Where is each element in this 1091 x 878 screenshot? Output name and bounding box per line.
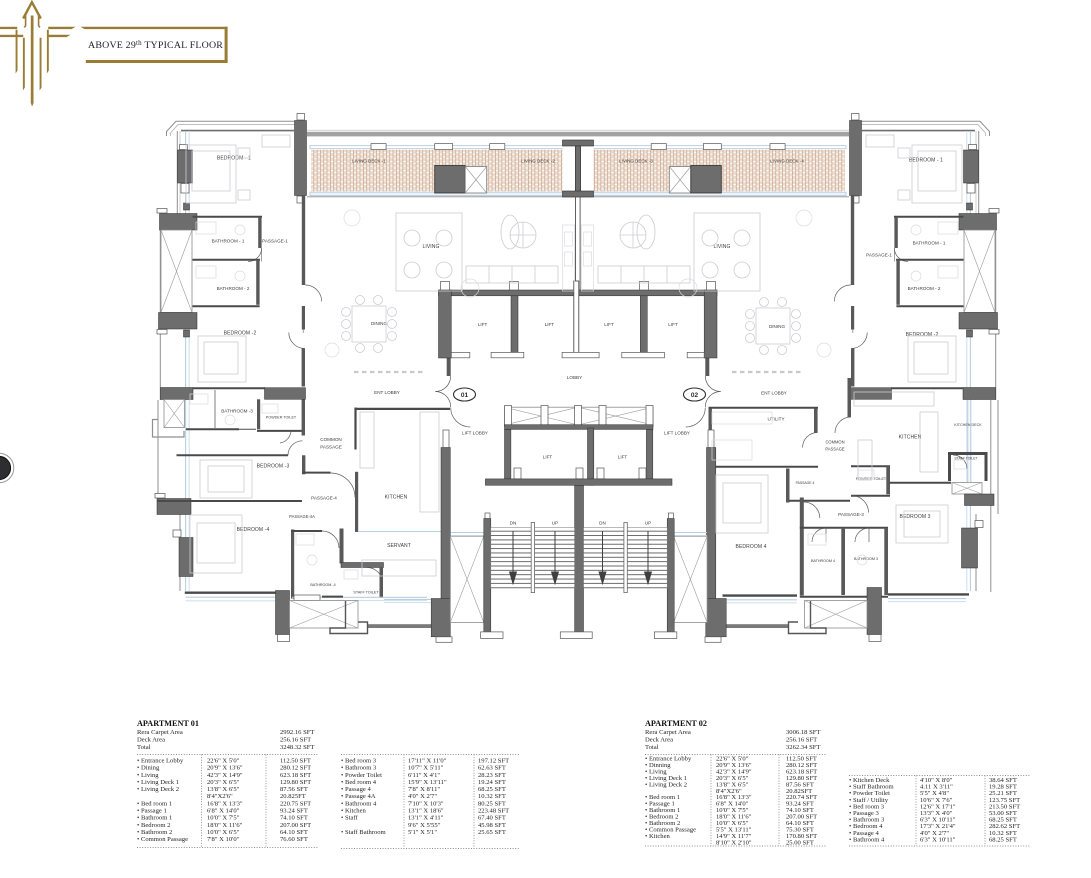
svg-text:BATHROOM - 2: BATHROOM - 2 [217,286,250,291]
svg-text:LIFT: LIFT [543,455,553,460]
svg-text:• Common Passage7'8" X 10'0"76: • Common Passage7'8" X 10'0"76.60 SFT [137,836,308,843]
svg-text:PASSAGE 4: PASSAGE 4 [796,481,815,485]
svg-text:BATHROOM 4: BATHROOM 4 [811,559,835,563]
svg-text:PASSAGE: PASSAGE [320,445,342,450]
svg-text:APARTMENT 01: APARTMENT 01 [137,719,199,728]
svg-text:STAFF TOILET: STAFF TOILET [353,591,379,595]
svg-text:BEDROOM - 1: BEDROOM - 1 [217,156,251,162]
svg-text:LIVING: LIVING [714,244,731,250]
svg-text:BEDROOM - 1: BEDROOM - 1 [909,158,943,164]
svg-text:SERVANT: SERVANT [387,543,411,549]
svg-text:LIFT LOBBY: LIFT LOBBY [664,431,690,436]
svg-text:PASSAGE-1: PASSAGE-1 [262,239,288,244]
svg-text:LIVING: LIVING [423,244,440,250]
svg-text:• Passage 47'8" X 8'11"68.25 S: • Passage 47'8" X 8'11"68.25 SFT [341,786,506,793]
svg-text:• Bathroom 46'3" X 10'11"68.25: • Bathroom 46'3" X 10'11"68.25 SFT [849,836,1017,843]
svg-text:COMMON: COMMON [825,440,844,445]
svg-text:LIFT: LIFT [604,322,614,327]
svg-text:ENT LOBBY: ENT LOBBY [761,391,787,396]
svg-text:COMMON: COMMON [320,437,341,442]
svg-text:BEDROOM -2: BEDROOM -2 [906,332,939,338]
svg-text:• Bathroom 310'7" X 5'11"62.6: • Bathroom 310'7" X 5'11"62.63 SFT [341,765,506,772]
svg-text:BATHROOM -4: BATHROOM -4 [310,583,335,587]
svg-text:• Entrance Lobby22'6" X 5'0"11: • Entrance Lobby22'6" X 5'0"112.50 SFT [137,758,311,765]
svg-text:• Living Deck 213'8" X 6'5"87.: • Living Deck 213'8" X 6'5"87.56 SFT [137,786,308,793]
svg-text:• Bed room 116'8" X 13'3"220.7: • Bed room 116'8" X 13'3"220.75 SFT [137,800,311,807]
svg-text:DN: DN [510,521,517,526]
svg-text:• Living Deck 120'3" X 6'5"129: • Living Deck 120'3" X 6'5"129.80 SFT [137,779,311,786]
svg-text:• Staff Bathroom5'1" X 5'1"25.: • Staff Bathroom5'1" X 5'1"25.65 SFT [341,829,506,836]
svg-text:PASSAGE-3: PASSAGE-3 [838,512,864,517]
svg-text:PASSAGE: PASSAGE [825,447,845,452]
svg-text:PASSAGE-4: PASSAGE-4 [311,496,337,501]
svg-text:KITCHEN: KITCHEN [385,495,408,501]
svg-text:BATHROOM - 1: BATHROOM - 1 [212,239,245,244]
svg-text:LOBBY: LOBBY [567,375,582,380]
svg-text:• Passage 4A4'0" X 2'7"10.32: • Passage 4A4'0" X 2'7"10.32 SFT [341,793,506,800]
svg-text:PASSAGE-1: PASSAGE-1 [866,253,892,258]
svg-text:• Bathroom 110'0" X 7'5"74.10: • Bathroom 110'0" X 7'5"74.10 SFT [137,815,308,822]
svg-text:• Bathroom 47'10" X 10'3"80.25: • Bathroom 47'10" X 10'3"80.25 SFT [341,800,506,807]
svg-text:• Bed room 317'11" X 11'0"197.: • Bed room 317'11" X 11'0"197.12 SFT [341,758,509,765]
svg-text:BEDROOM 4: BEDROOM 4 [736,544,767,550]
svg-text:LIVING DECK -4: LIVING DECK -4 [770,159,804,164]
svg-text:KITCHEN: KITCHEN [899,435,922,441]
svg-text:LIFT: LIFT [545,322,555,327]
svg-text:UP: UP [645,521,651,526]
svg-text:DN: DN [599,521,606,526]
svg-text:02: 02 [691,392,699,399]
svg-text:UP: UP [552,521,558,526]
svg-text:• Passage 16'8" X 14'0"93.24 S: • Passage 16'8" X 14'0"93.24 SFT [137,808,308,815]
svg-text:LIFT: LIFT [668,322,678,327]
svg-text:APARTMENT 02: APARTMENT 02 [645,719,707,728]
svg-text:LIVING DECK -2: LIVING DECK -2 [521,159,555,164]
svg-text:LIVING DECK -1: LIVING DECK -1 [352,159,386,164]
svg-text:BEDROOM -3: BEDROOM -3 [257,464,290,470]
svg-text:BATHROOM - 2: BATHROOM - 2 [908,286,941,291]
svg-text:LIFT LOBBY: LIFT LOBBY [462,431,488,436]
svg-text:ABOVE 29th TYPICAL FLOOR: ABOVE 29th TYPICAL FLOOR [88,39,223,51]
svg-text:DINING: DINING [769,324,786,329]
svg-text:BEDROOM -4: BEDROOM -4 [237,527,270,533]
svg-text:UTILITY: UTILITY [767,417,784,422]
svg-text:• Bedroom 218'0" X 11'6"207.00: • Bedroom 218'0" X 11'6"207.00 SFT [137,822,311,829]
svg-text:• Bed room 415'9" X 13'11"19.2: • Bed room 415'9" X 13'11"19.24 SFT [341,779,506,786]
svg-text:BATHROOM -3: BATHROOM -3 [221,409,253,414]
svg-text:KITCHEN DECK: KITCHEN DECK [954,423,982,427]
svg-text:• Powder Toilet6'11" X 4'1"28.: • Powder Toilet6'11" X 4'1"28.23 SFT [341,772,506,779]
svg-text:LIFT: LIFT [478,322,488,327]
svg-text:PASSAGE-4A: PASSAGE-4A [289,514,315,519]
svg-text:• Bathroom 210'0" X 6'5"64.10: • Bathroom 210'0" X 6'5"64.10 SFT [137,829,308,836]
svg-text:01: 01 [461,392,469,399]
svg-text:POWDER TOILET: POWDER TOILET [266,416,297,420]
svg-text:LIFT: LIFT [618,455,628,460]
svg-text:DINING: DINING [371,321,388,326]
svg-text:BATHROOM - 1: BATHROOM - 1 [913,241,946,246]
svg-text:LIVING DECK -3: LIVING DECK -3 [619,159,653,164]
svg-text:ENT LOBBY: ENT LOBBY [374,390,400,395]
